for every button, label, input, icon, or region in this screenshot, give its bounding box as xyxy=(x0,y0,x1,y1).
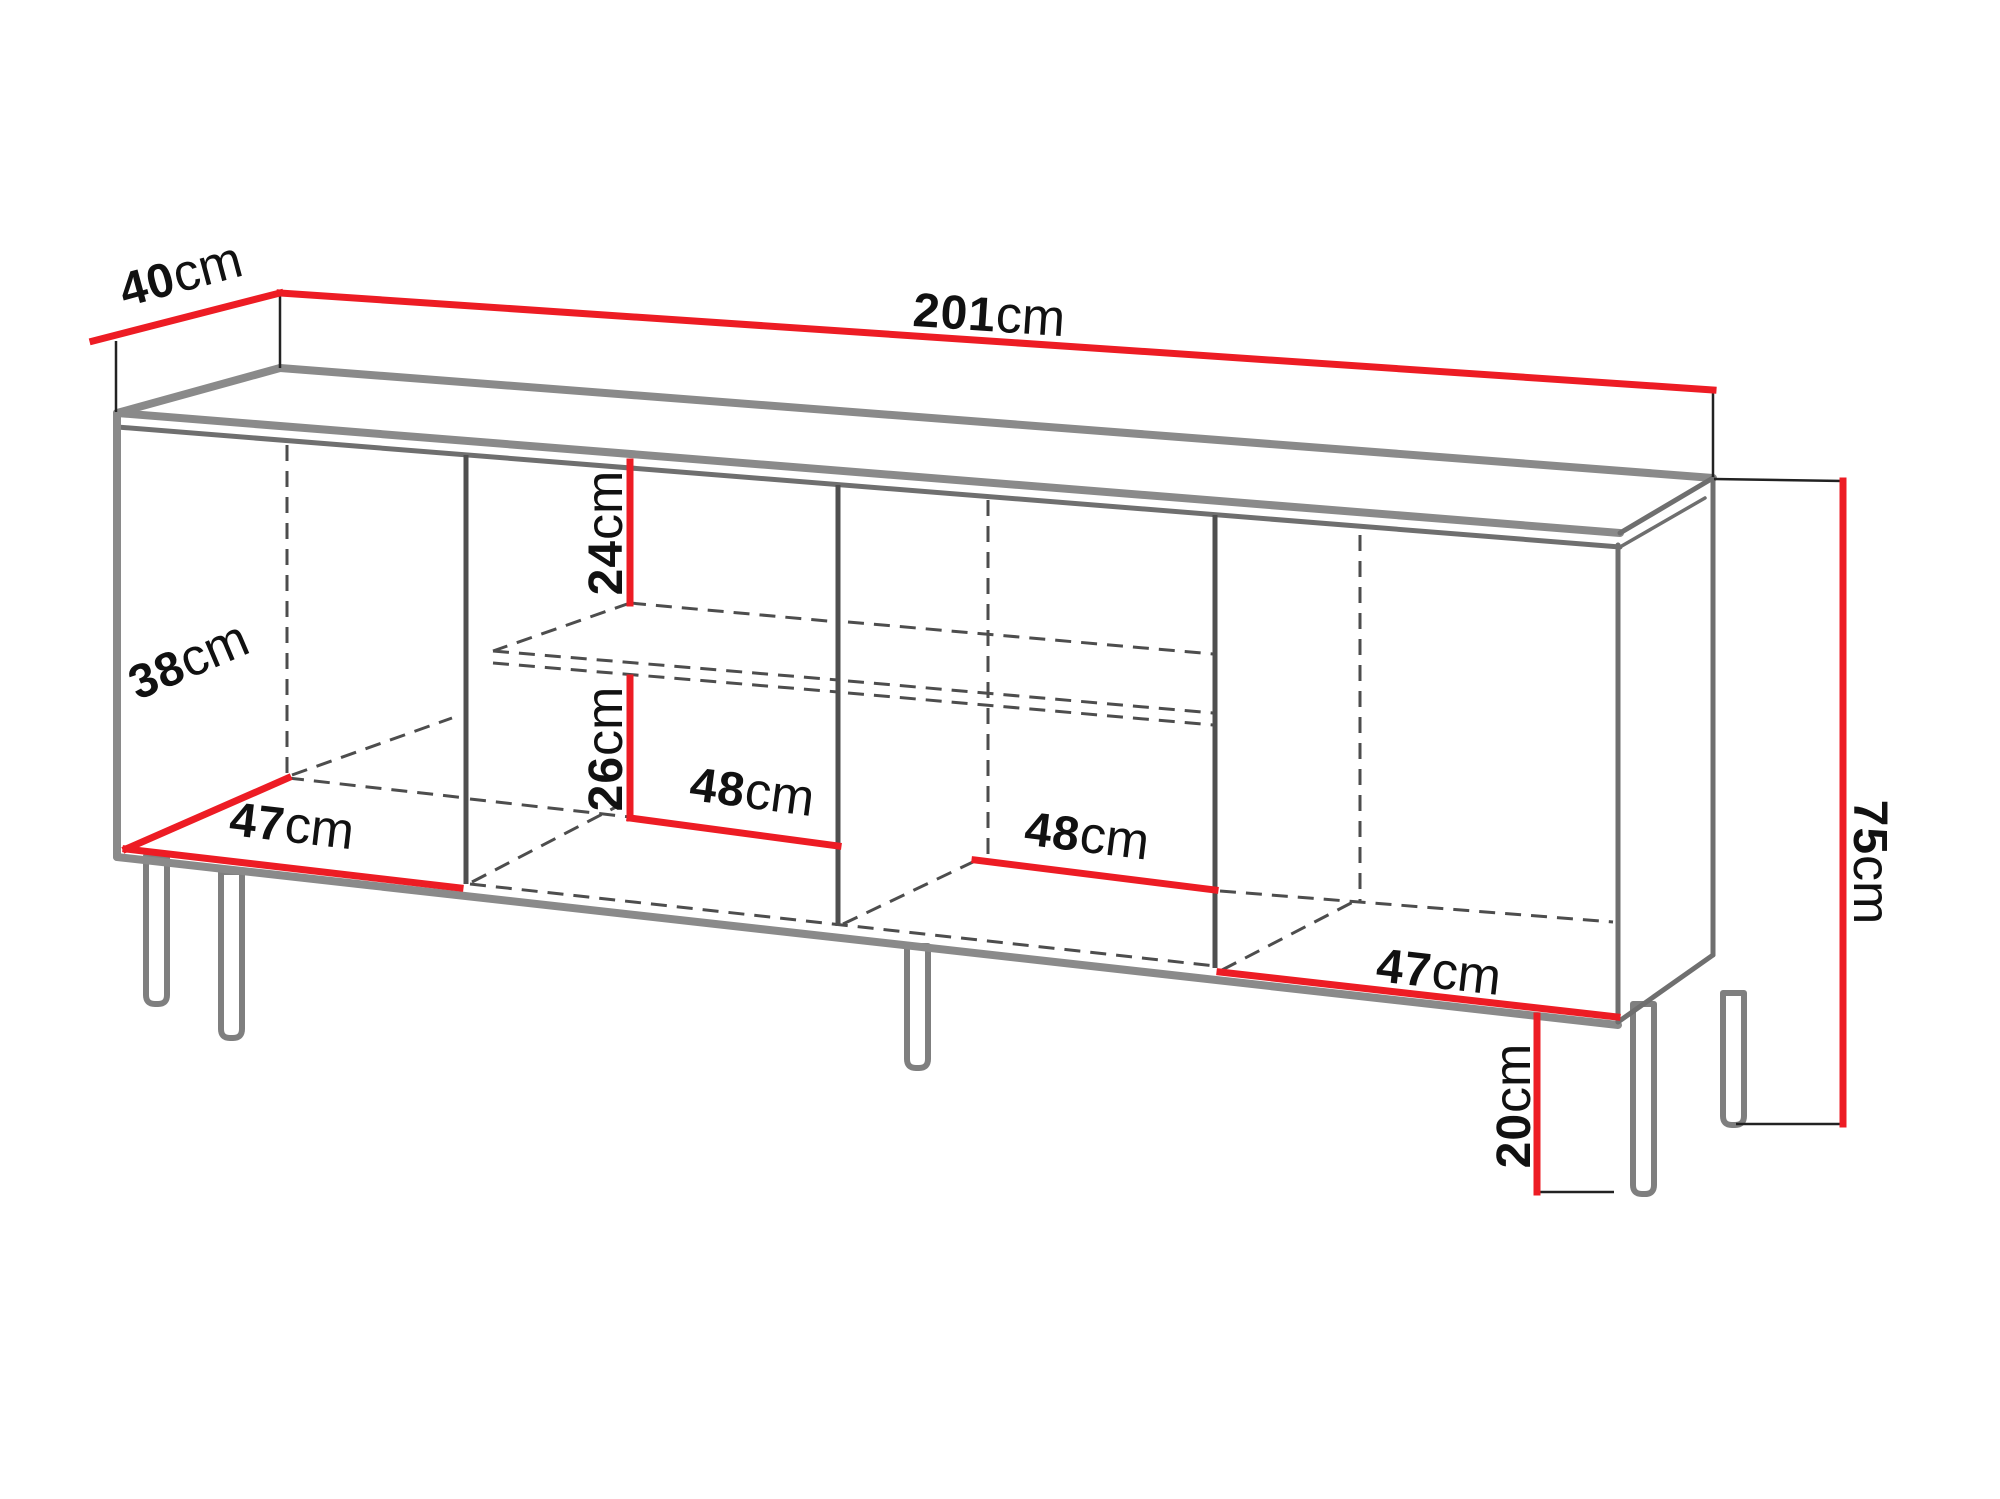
dim-20-label: 20cm xyxy=(1484,1044,1542,1169)
right-bottom-edge xyxy=(1618,955,1713,1022)
dim-26-label: 26cm xyxy=(576,687,634,812)
depth-diagonal-divider-c xyxy=(1222,901,1355,970)
depth-diagonal-section1 xyxy=(292,718,452,775)
floor-back-edge-section4 xyxy=(1220,891,1613,922)
depth-diagonal-divider-b xyxy=(843,861,975,924)
dimension-lines xyxy=(93,293,1843,1192)
interior-hidden-edges xyxy=(287,445,1613,970)
top-left-edge xyxy=(117,368,280,413)
top-right-edge xyxy=(1620,478,1713,533)
cabinet-technical-drawing: 40cm 201cm 24cm 26cm 48cm 48cm 47cm 38cm… xyxy=(0,0,2000,1499)
shelf2-front-bottom-edge xyxy=(493,663,838,692)
floor-front-edge-dashed xyxy=(470,884,1215,966)
top-back-edge xyxy=(280,368,1713,478)
shelf3-back-edge xyxy=(848,622,1213,654)
leg-middle xyxy=(907,946,928,1068)
shelf2-back-edge xyxy=(630,603,838,622)
cabinet-outline xyxy=(117,368,1713,1025)
dim-24-label: 24cm xyxy=(576,471,634,596)
shelf2-front-top-edge xyxy=(493,651,838,680)
dim-38-label: 38cm xyxy=(120,609,257,711)
dim-48b-label: 48cm xyxy=(1022,799,1153,872)
top-front-edge xyxy=(117,413,1620,533)
top-underside-front xyxy=(117,427,1620,547)
depth-diagonal-divider-a xyxy=(472,807,616,882)
leg-front-right xyxy=(1633,1004,1654,1194)
dim-201-label: 201cm xyxy=(911,280,1067,348)
leg-front-left xyxy=(146,856,167,1004)
dim-47a-label: 47cm xyxy=(227,789,358,861)
furniture-dimension-diagram: 40cm 201cm 24cm 26cm 48cm 48cm 47cm 38cm… xyxy=(0,0,2000,1499)
dim-48a-label: 48cm xyxy=(687,754,818,828)
leg-back-left xyxy=(221,872,242,1038)
dim-47a-line xyxy=(126,849,460,888)
extension-lines xyxy=(116,293,1843,1192)
ext-75-top xyxy=(1714,479,1843,481)
dim-75-label: 75cm xyxy=(1842,800,1900,925)
floor-back-edge-section1 xyxy=(288,778,466,798)
shelf2-left-edge xyxy=(493,603,630,651)
leg-back-right xyxy=(1723,993,1744,1125)
